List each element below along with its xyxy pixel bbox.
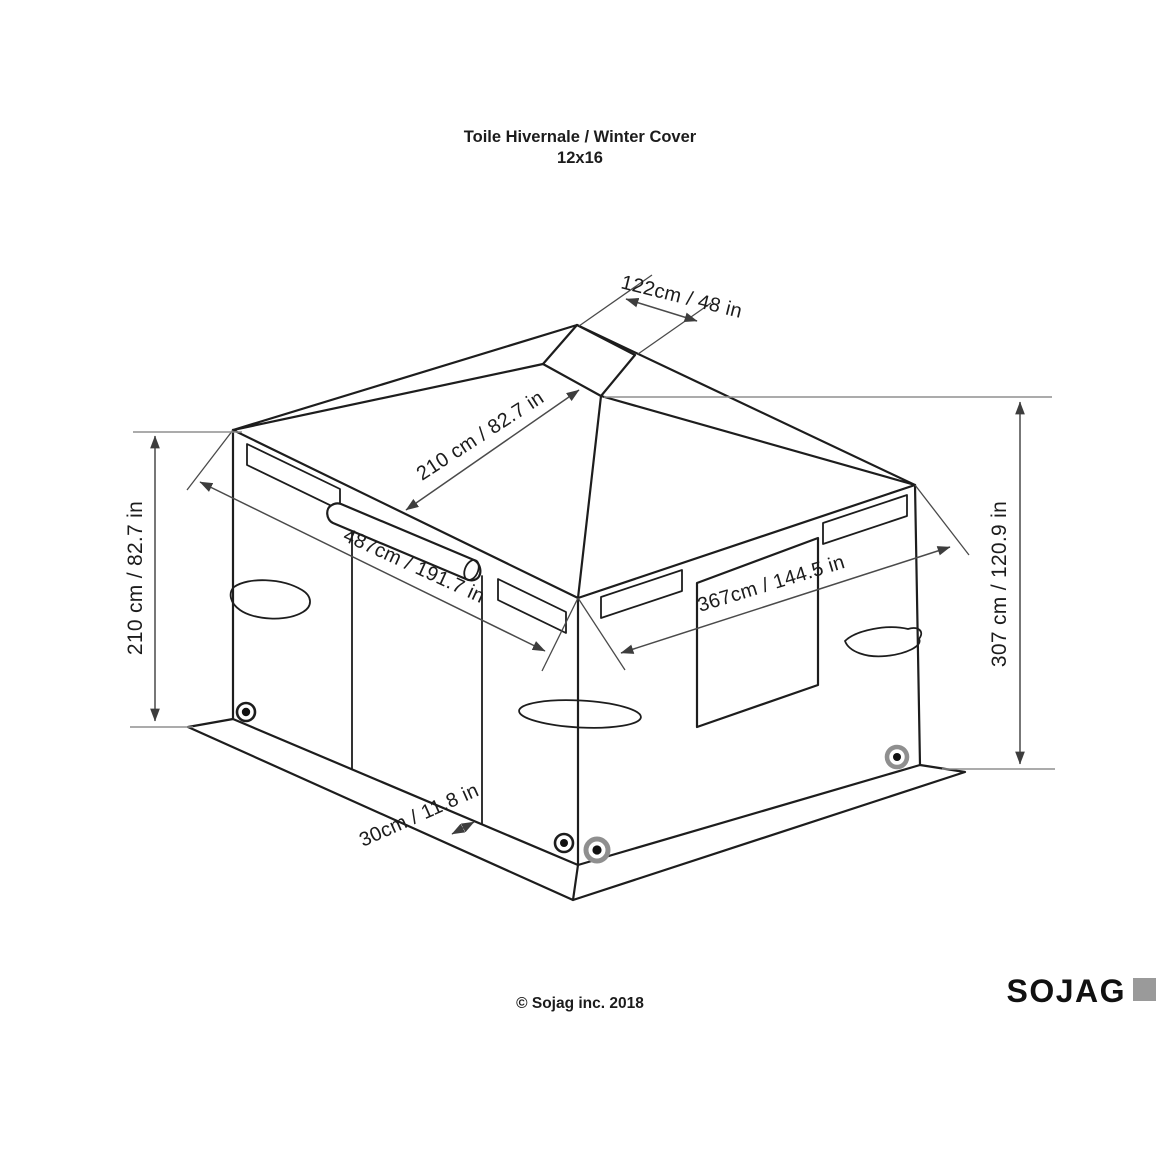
tie-back-center	[518, 697, 641, 730]
valance-strip-left-1	[247, 444, 340, 510]
tie-back-right	[845, 627, 921, 656]
right-wall-edge	[915, 485, 920, 765]
dimension-line	[452, 822, 474, 834]
grommet-front-2	[586, 839, 608, 861]
logo-wordmark: SOJAG	[1006, 973, 1126, 1009]
tie-back-left	[231, 580, 310, 618]
gazebo-drawing	[188, 325, 965, 900]
dimension-label-total-height: 307 cm / 120.9 in	[988, 501, 1011, 667]
grommet-front-1	[555, 834, 573, 852]
dimension-roof-slope: 210 cm / 82.7 in	[406, 387, 579, 510]
dimension-label-cap-width: 122cm / 48 in	[619, 272, 745, 323]
extension-line	[915, 485, 969, 555]
logo-square	[1133, 978, 1156, 1001]
dimension-label-roof-slope: 210 cm / 82.7 in	[413, 387, 548, 486]
dimension-line	[406, 390, 579, 510]
wall-bottom-edges	[233, 719, 920, 865]
brand-logo: SOJAG	[1006, 973, 1156, 1009]
grommet-right	[887, 747, 907, 767]
page-subtitle: 12x16	[557, 149, 603, 167]
copyright-text: © Sojag inc. 2018	[516, 995, 644, 1012]
page-title: Toile Hivernale / Winter Cover	[464, 128, 697, 146]
winter-cover-diagram: Toile Hivernale / Winter Cover 12x16	[0, 0, 1160, 1160]
dimension-label-side-width: 367cm / 144.5 in	[695, 551, 847, 617]
dimension-front-width: 487cm / 191.7 in	[187, 430, 578, 671]
dimension-line	[621, 547, 950, 653]
diagram-page: Toile Hivernale / Winter Cover 12x16	[0, 0, 1160, 1160]
roof-top-cap	[543, 325, 635, 396]
bottom-skirt	[188, 719, 965, 900]
roof-right-hip-lines	[577, 325, 915, 485]
dimension-wall-height: 210 cm / 82.7 in	[124, 432, 242, 727]
dimension-line	[200, 482, 545, 651]
extension-line	[187, 430, 233, 490]
dimension-cap-width: 122cm / 48 in	[579, 272, 744, 354]
dimension-total-height: 307 cm / 120.9 in	[604, 397, 1055, 769]
roof-front-hip	[578, 396, 601, 598]
dimension-label-wall-height: 210 cm / 82.7 in	[124, 501, 147, 655]
grommet-left	[237, 703, 255, 721]
title-block: Toile Hivernale / Winter Cover 12x16	[464, 128, 697, 167]
